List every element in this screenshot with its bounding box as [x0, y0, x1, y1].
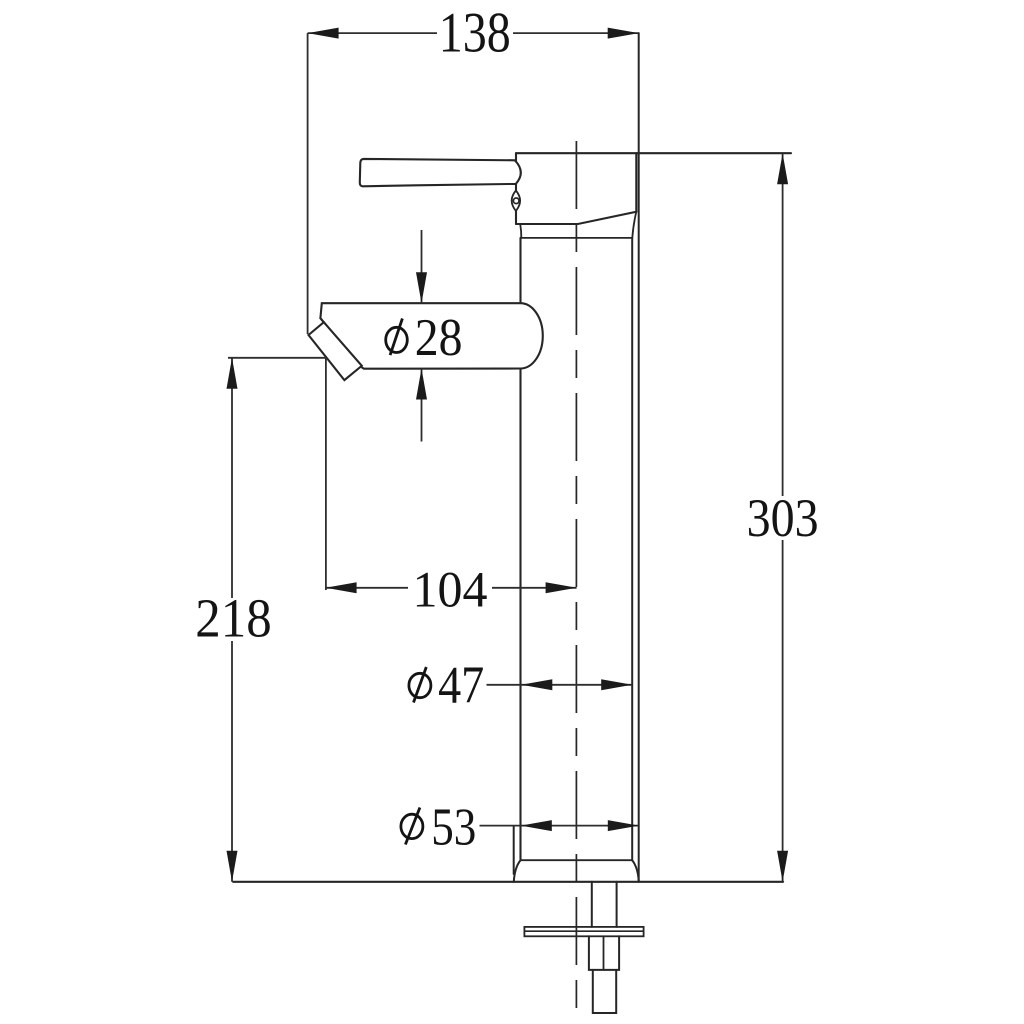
svg-text:303: 303 — [747, 488, 819, 548]
svg-text:218: 218 — [195, 589, 271, 650]
svg-text:138: 138 — [439, 2, 511, 65]
svg-text:28: 28 — [415, 309, 463, 367]
svg-text:53: 53 — [431, 797, 476, 856]
svg-text:47: 47 — [438, 657, 484, 715]
svg-text:104: 104 — [413, 563, 488, 619]
